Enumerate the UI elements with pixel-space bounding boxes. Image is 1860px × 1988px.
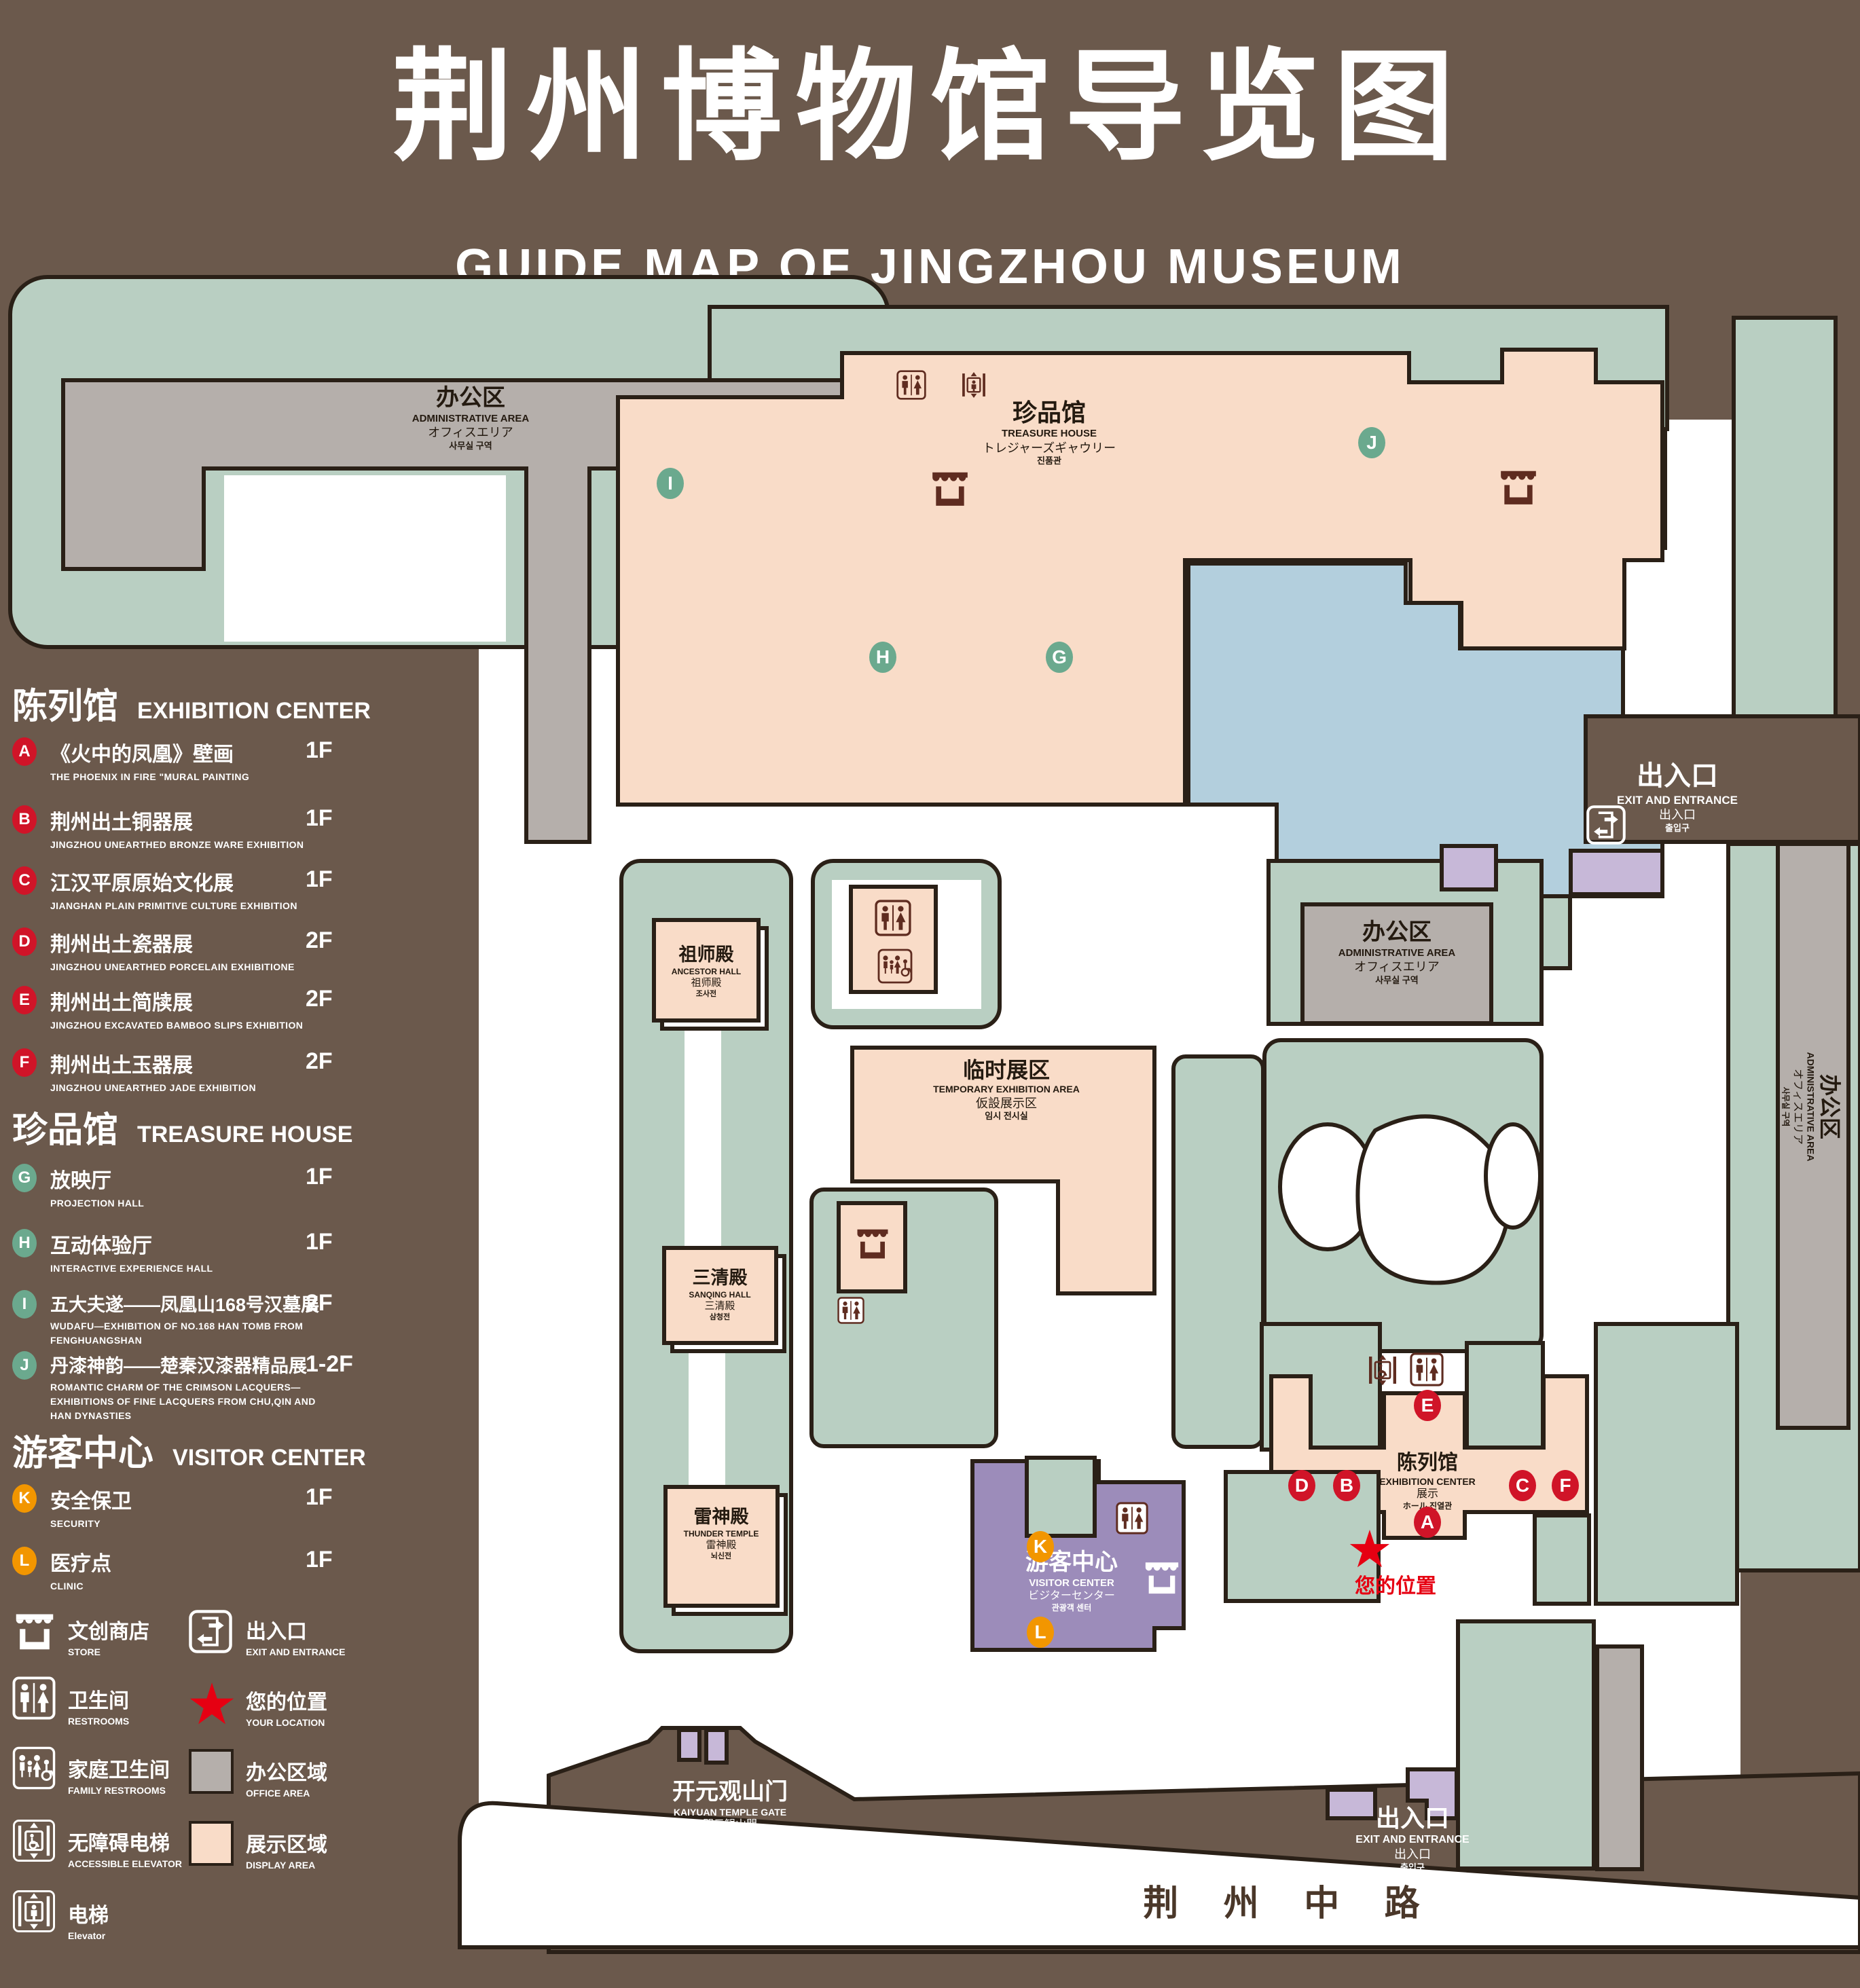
map-badge-K[interactable]: K: [1027, 1531, 1054, 1562]
store-icon: [929, 468, 971, 508]
map-badge-H[interactable]: H: [869, 642, 896, 673]
family-restrooms-icon: [877, 948, 913, 984]
legend-family-restrooms: 家庭卫生间 FAMILY RESTROOMS: [68, 1753, 170, 1796]
legend-item-A[interactable]: A 《火中的凤凰》壁画 THE PHOENIX IN FIRE "MURAL P…: [12, 737, 474, 784]
building-admin-far-east: [1728, 844, 1860, 1570]
legend-exit: 出入口 EXIT AND ENTRANCE: [246, 1615, 346, 1657]
map-badge-B[interactable]: B: [1333, 1470, 1360, 1501]
map-badge-D[interactable]: D: [1288, 1470, 1315, 1501]
legend-item-E[interactable]: E 荆州出土简牍展 JINGZHOU EXCAVATED BAMBOO SLIP…: [12, 986, 474, 1033]
map-badge-I[interactable]: I: [657, 468, 684, 499]
legend-section-visitor-center: 游客中心VISITOR CENTER: [12, 1424, 366, 1475]
display-area-swatch: [189, 1821, 234, 1866]
treasure-house-label: 珍品馆 TREASURE HOUSE トレジャーズギャウリー 진품관: [983, 397, 1116, 467]
legend-item-I[interactable]: I 五大夫遂——凤凰山168号汉墓展 WUDAFU—EXHIBITION OF …: [12, 1290, 474, 1348]
legend-item-D[interactable]: D 荆州出土瓷器展 JINGZHOU UNEARTHED PORCELAIN E…: [12, 927, 474, 974]
restrooms-icon: [896, 365, 926, 405]
admin-nw-label: 办公区 ADMINISTRATIVE AREA オフィスエリア 사무실 구역: [412, 384, 530, 452]
legend-item-F[interactable]: F 荆州出土玉器展 JINGZHOU UNEARTHED JADE EXHIBI…: [12, 1048, 474, 1095]
accessible-elevator-icon: [12, 1817, 56, 1864]
legend-office-area: 办公区域 OFFICE AREA: [246, 1756, 327, 1799]
family-restrooms-icon: [12, 1745, 56, 1791]
office-strip-southeast: [1597, 1646, 1642, 1869]
badge-L: L: [12, 1547, 37, 1575]
exit-icon: [1586, 805, 1626, 845]
your-location-star: ★: [1347, 1524, 1393, 1576]
legend-item-K[interactable]: K 安全保卫 SECURITY 1F: [12, 1484, 474, 1531]
badge-E: E: [12, 986, 37, 1014]
exit-icon: [189, 1609, 232, 1654]
legend-store: 文创商店 STORE: [68, 1615, 149, 1657]
legend-display-area: 展示区域 DISPLAY AREA: [246, 1828, 327, 1871]
map-badge-J[interactable]: J: [1358, 427, 1385, 458]
restrooms-icon: [12, 1674, 56, 1722]
badge-G: G: [12, 1164, 37, 1192]
badge-H: H: [12, 1229, 37, 1257]
office-area-swatch: [189, 1749, 234, 1794]
elevator-icon: [12, 1888, 56, 1935]
legend-section-exhibition-center: 陈列馆EXHIBITION CENTER: [12, 678, 371, 729]
badge-A: A: [12, 737, 37, 766]
legend-item-L[interactable]: L 医疗点 CLINIC 1F: [12, 1547, 474, 1594]
kaiyuan-gate-label: 开元观山门 KAIYUAN TEMPLE GATE 開元観山門 산문을 열다: [672, 1778, 788, 1842]
badge-B: B: [12, 805, 37, 834]
badge-F: F: [12, 1048, 37, 1077]
restroom-building: [813, 861, 1000, 1027]
accessible-elevator-icon: [1365, 1351, 1400, 1389]
temporary-exhibition-label: 临时展区 TEMPORARY EXHIBITION AREA 仮設展示区 임시 …: [933, 1056, 1080, 1122]
legend-your-location: 您的位置 YOUR LOCATION: [246, 1685, 327, 1728]
map-badge-G[interactable]: G: [1046, 642, 1073, 673]
garden: [1264, 1040, 1542, 1351]
exhibition-center-label: 陈列馆 EXHIBITION CENTER 展示 ホール 진열관: [1379, 1450, 1476, 1511]
badge-D: D: [12, 927, 37, 956]
restrooms-icon: [837, 1292, 864, 1329]
badge-K: K: [12, 1484, 37, 1513]
road-label: 荆 州 中 路: [1143, 1882, 1437, 1926]
legend-elevator: 电梯 Elevator: [68, 1898, 109, 1941]
admin-east-label: 办公区 ADMINISTRATIVE AREA オフィスエリア 사무실 구역: [1338, 918, 1456, 986]
exit-south-label: 出入口 EXIT AND ENTRANCE 出入口 출입구: [1355, 1803, 1469, 1873]
legend-item-G[interactable]: G 放映厅 PROJECTION HALL 1F: [12, 1164, 474, 1211]
restrooms-icon: [1410, 1350, 1444, 1389]
restrooms-icon: [1116, 1499, 1148, 1537]
ancestor-hall-label: 祖师殿 ANCESTOR HALL 祖师殿 조사전: [672, 944, 741, 999]
lawn-southeast: [1458, 1621, 1594, 1869]
legend-section-treasure-house: 珍品馆TREASURE HOUSE: [12, 1101, 352, 1152]
guide-map-page: 荆州博物馆导览图 GUIDE MAP OF JINGZHOU MUSEUM: [0, 0, 1860, 1988]
legend-item-C[interactable]: C 江汉平原原始文化展 JIANGHAN PLAIN PRIMITIVE CUL…: [12, 866, 474, 913]
badge-C: C: [12, 866, 37, 895]
map-badge-L[interactable]: L: [1027, 1617, 1054, 1648]
your-location-star: ★: [186, 1676, 237, 1733]
store-icon: [1142, 1559, 1182, 1596]
map-badge-C[interactable]: C: [1509, 1470, 1536, 1501]
elevator-icon: [959, 365, 989, 405]
legend-item-B[interactable]: B 荆州出土铜器展 JINGZHOU UNEARTHED BRONZE WARE…: [12, 805, 474, 852]
badge-J: J: [12, 1351, 37, 1380]
thunder-temple-label: 雷神殿 THUNDER TEMPLE 雷神殿 뇌신전: [684, 1506, 759, 1561]
legend-accessible-elevator: 无障碍电梯 ACCESSIBLE ELEVATOR: [68, 1826, 182, 1869]
admin-far-east-label: 办公区 ADMINISTRATIVE AREA オフィスエリア 사무실 구역: [1781, 1052, 1844, 1162]
store-icon: [12, 1610, 57, 1651]
restrooms-icon: [875, 895, 911, 941]
store-icon: [854, 1226, 891, 1260]
badge-I: I: [12, 1290, 37, 1319]
legend-item-H[interactable]: H 互动体验厅 INTERACTIVE EXPERIENCE HALL 1F: [12, 1229, 474, 1276]
map-badge-A[interactable]: A: [1414, 1507, 1441, 1538]
legend-restrooms: 卫生间 RESTROOMS: [68, 1684, 129, 1727]
sanqing-hall-label: 三清殿 SANQING HALL 三清殿 삼청전: [689, 1267, 750, 1322]
exit-ne-label: 出入口 EXIT AND ENTRANCE 出入口 출입구: [1617, 759, 1738, 834]
map-badge-E[interactable]: E: [1414, 1390, 1441, 1421]
map-badge-F[interactable]: F: [1552, 1470, 1579, 1501]
legend-item-J[interactable]: J 丹漆神韵——楚秦汉漆器精品展 ROMANTIC CHARM OF THE C…: [12, 1351, 474, 1423]
store-icon: [1497, 467, 1539, 507]
